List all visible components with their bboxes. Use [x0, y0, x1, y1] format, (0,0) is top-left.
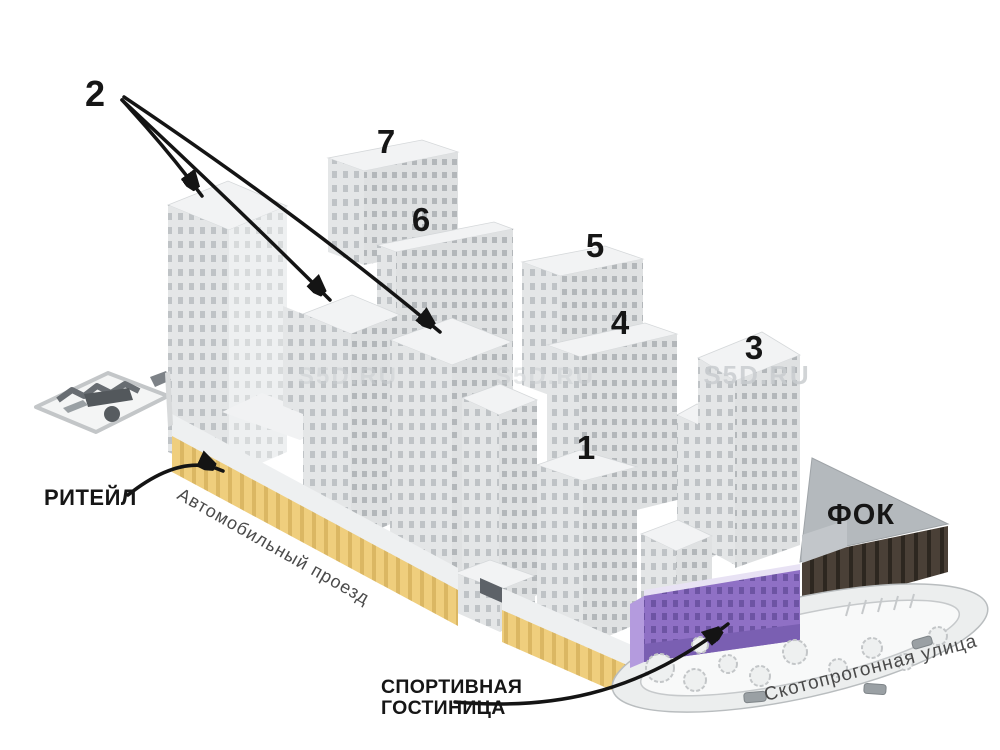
car-icon: [864, 683, 887, 695]
fok-label: ФОК: [827, 499, 895, 531]
building-1-label: 1: [577, 429, 595, 466]
playground-carousel: [104, 406, 120, 422]
site-plan-page: S5D.RU S5D.RU S5D.RU 2 7 6 5 4 3 1 РИТЕЙ…: [0, 0, 1000, 750]
building-4-label: 4: [611, 304, 630, 341]
building-6-label: 6: [412, 201, 430, 238]
building-7-label: 7: [377, 123, 395, 160]
building-1-right-face: [583, 467, 637, 647]
building-2-label: 2: [85, 73, 105, 114]
watermark-text: S5D.RU: [495, 363, 595, 390]
site-plan-illustration: S5D.RU S5D.RU S5D.RU 2 7 6 5 4 3 1 РИТЕЙ…: [0, 0, 1000, 750]
watermark-text: S5D.RU: [298, 363, 398, 390]
sports-hotel-end-face: [630, 596, 644, 668]
tree-icon: [750, 666, 770, 686]
residential-complex: [36, 140, 998, 738]
sports-hotel-label-line2: ГОСТИНИЦА: [381, 697, 506, 719]
sports-hotel-label-line1: СПОРТИВНАЯ: [381, 676, 522, 698]
retail-label: РИТЕЙЛ: [44, 485, 137, 510]
watermarks: S5D.RU S5D.RU S5D.RU: [298, 360, 811, 390]
building-3-label: 3: [745, 329, 763, 366]
playground: [36, 371, 173, 432]
arrow-building-2-first: [122, 100, 202, 196]
tree-icon: [783, 640, 807, 664]
building-5-label: 5: [586, 227, 604, 264]
courtyard-inner-tower: [283, 306, 303, 414]
tree-icon: [719, 655, 737, 673]
tree-icon: [684, 669, 706, 691]
